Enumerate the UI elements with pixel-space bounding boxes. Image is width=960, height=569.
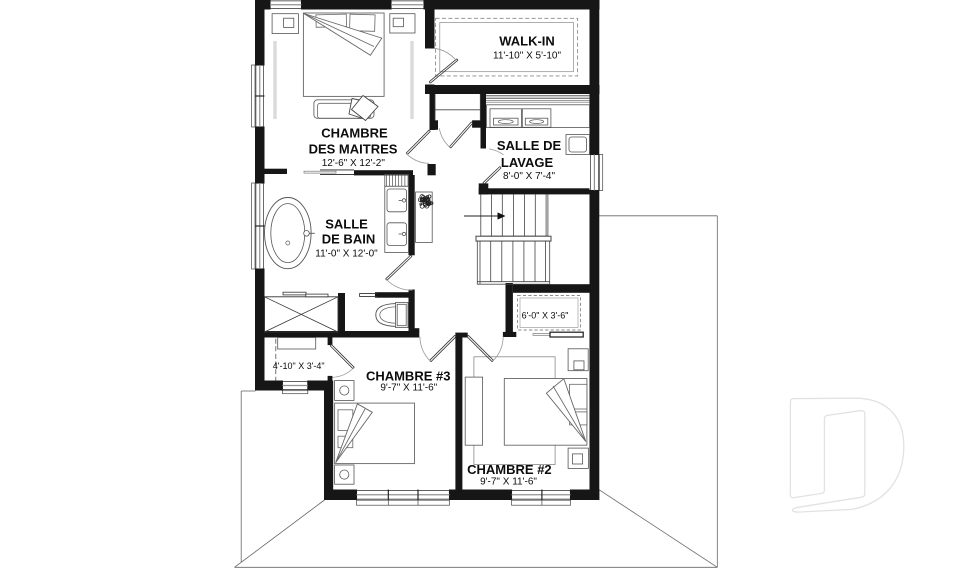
- svg-text:DE BAIN: DE BAIN: [322, 232, 375, 247]
- svg-text:LAVAGE: LAVAGE: [501, 155, 554, 170]
- svg-text:11'-10" X 5'-10": 11'-10" X 5'-10": [493, 50, 561, 61]
- svg-text:8'-0" X 7'-4": 8'-0" X 7'-4": [503, 171, 556, 182]
- svg-text:9'-7" X 11'-6": 9'-7" X 11'-6": [480, 477, 537, 488]
- svg-text:SALLE DE: SALLE DE: [497, 138, 562, 153]
- svg-text:CHAMBRE #3: CHAMBRE #3: [366, 368, 451, 383]
- svg-text:11'-0" X 12'-0": 11'-0" X 12'-0": [315, 249, 378, 260]
- svg-text:DES MAITRES: DES MAITRES: [309, 141, 398, 156]
- svg-text:WALK-IN: WALK-IN: [499, 34, 555, 49]
- svg-text:6'-0" X 3'-6": 6'-0" X 3'-6": [522, 310, 569, 320]
- svg-text:4'-10" X 3'-4": 4'-10" X 3'-4": [273, 361, 325, 371]
- svg-text:9'-7" X 11'-6": 9'-7" X 11'-6": [380, 383, 437, 394]
- svg-text:SALLE: SALLE: [325, 217, 368, 232]
- svg-text:12'-6" X 12'-2": 12'-6" X 12'-2": [322, 158, 386, 169]
- svg-text:CHAMBRE: CHAMBRE: [321, 125, 388, 140]
- svg-text:CHAMBRE #2: CHAMBRE #2: [467, 462, 552, 477]
